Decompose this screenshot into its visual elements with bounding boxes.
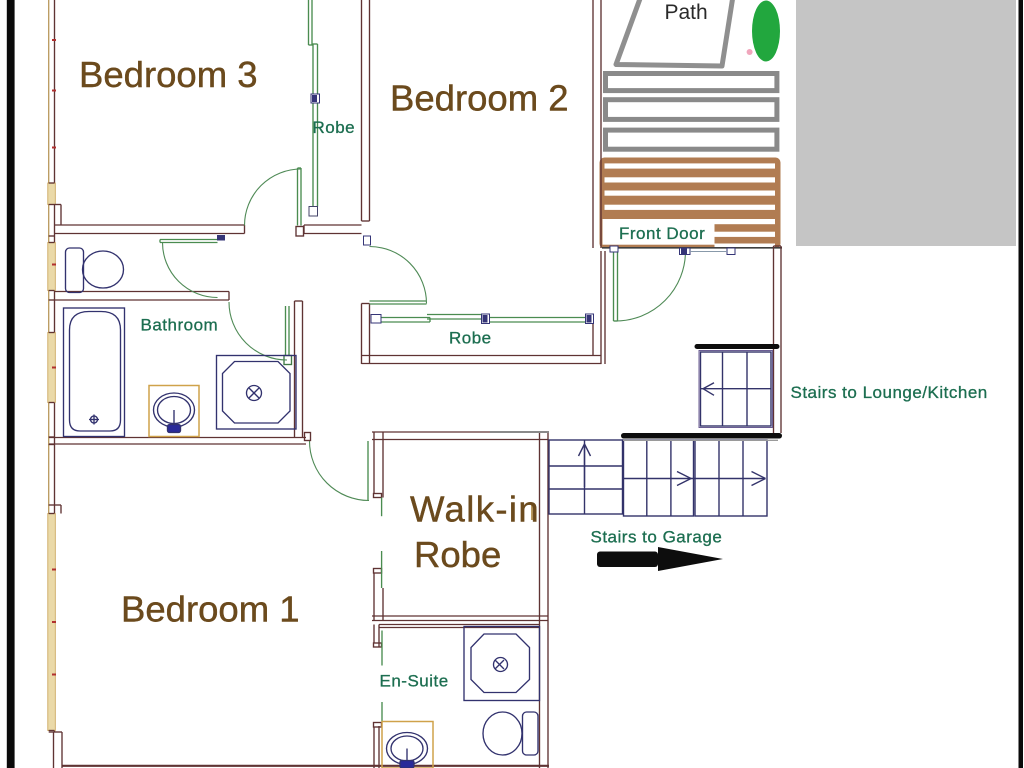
svg-text:Stairs to Lounge/Kitchen: Stairs to Lounge/Kitchen [791, 383, 988, 402]
svg-text:En-Suite: En-Suite [380, 672, 449, 691]
svg-text:Robe: Robe [313, 118, 356, 137]
svg-text:Robe: Robe [449, 329, 492, 348]
svg-text:Walk-in: Walk-in [410, 489, 540, 530]
svg-text:Front Door: Front Door [619, 224, 705, 243]
svg-text:Bedroom 2: Bedroom 2 [390, 78, 569, 119]
svg-text:Robe: Robe [414, 534, 501, 575]
svg-text:Bedroom 1: Bedroom 1 [121, 589, 300, 630]
svg-text:Bathroom: Bathroom [141, 315, 219, 334]
svg-text:Path: Path [665, 1, 708, 24]
svg-text:Bedroom 3: Bedroom 3 [79, 54, 258, 95]
svg-text:Stairs to Garage: Stairs to Garage [591, 527, 723, 546]
